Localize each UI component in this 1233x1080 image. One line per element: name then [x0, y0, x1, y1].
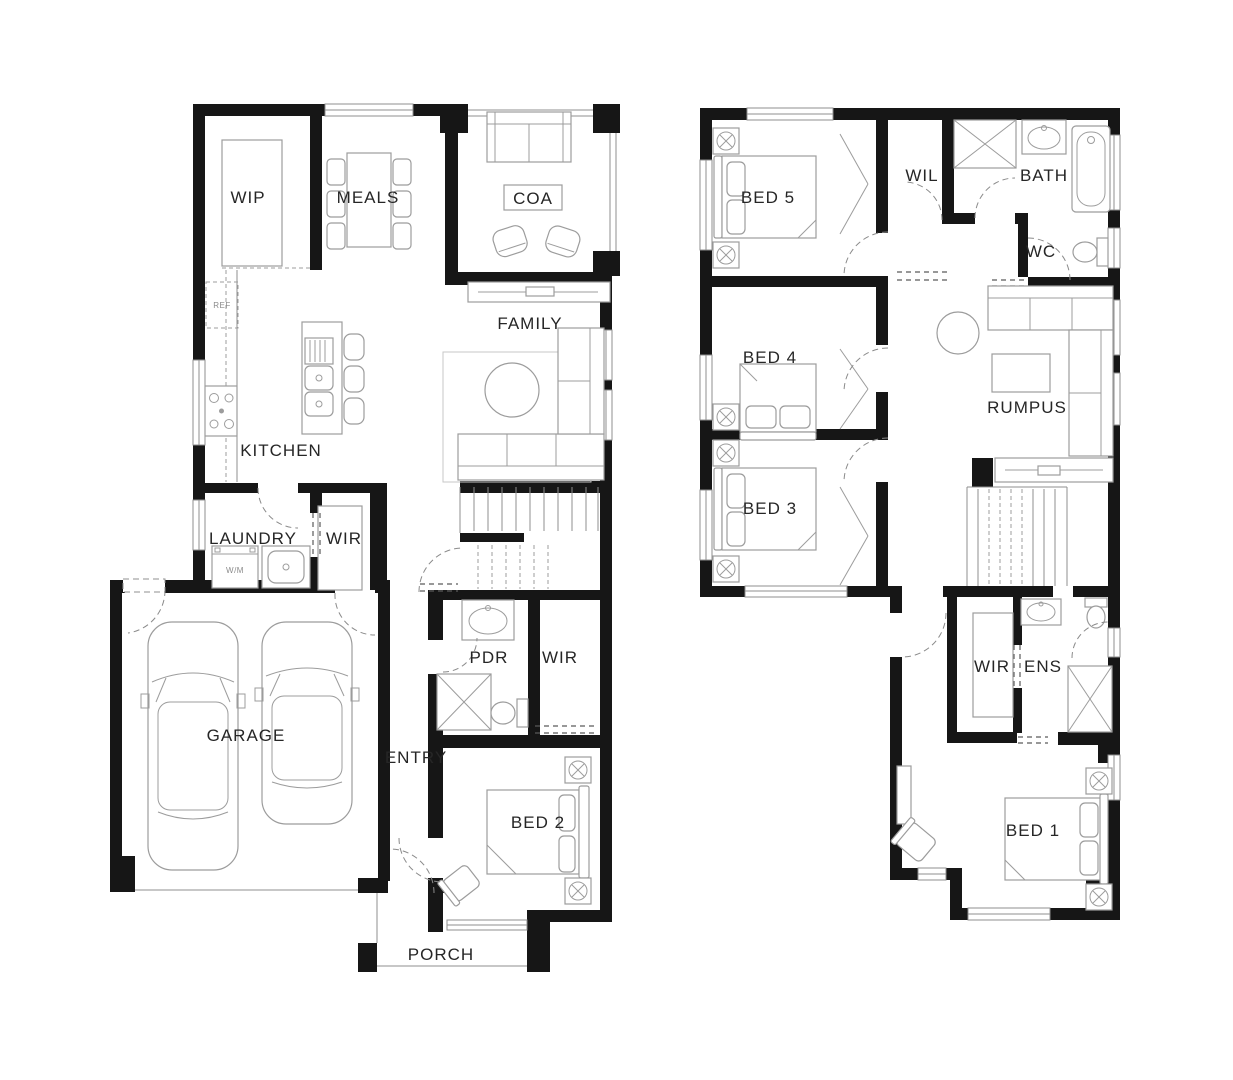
- bathtub: [1072, 126, 1110, 212]
- bath-shower: [954, 120, 1016, 168]
- floorplan-page: WIP MEALS COA FAMILY KITCHEN LAUNDRY WIR…: [0, 0, 1233, 1080]
- room-label-bath: BATH: [1020, 166, 1068, 185]
- ceiling-symbol: [713, 242, 739, 268]
- outdoor-sofa: [487, 112, 571, 162]
- bed: [487, 786, 589, 878]
- stool: [344, 334, 364, 360]
- dresser: [897, 766, 911, 824]
- window: [447, 920, 527, 930]
- ceiling-symbol: [1086, 768, 1112, 794]
- ceiling-symbol: [713, 128, 739, 154]
- room-label-coa: COA: [513, 189, 553, 208]
- ceiling-symbol: [565, 757, 591, 783]
- window: [968, 908, 1050, 920]
- window: [325, 104, 413, 116]
- tv-unit: [468, 282, 610, 302]
- room-label-wir-first: WIR: [974, 657, 1010, 676]
- window: [747, 108, 833, 120]
- sink-bowl: [305, 366, 333, 390]
- floorplan-svg: WIP MEALS COA FAMILY KITCHEN LAUNDRY WIR…: [0, 0, 1233, 1080]
- ceiling-symbol: [1086, 884, 1112, 910]
- appliance-label-wm: W/M: [226, 566, 244, 575]
- pdr-basin: [462, 600, 514, 640]
- cooktop: [205, 386, 237, 436]
- ens-shower: [1068, 666, 1112, 732]
- window: [745, 586, 847, 597]
- robe-shelf: [318, 506, 362, 590]
- bed: [740, 364, 816, 440]
- window: [193, 360, 205, 445]
- window: [193, 500, 205, 550]
- room-label-porch: PORCH: [408, 945, 474, 964]
- room-label-meals: MEALS: [337, 188, 400, 207]
- island-bench: [302, 322, 342, 434]
- room-label-bed5: BED 5: [741, 188, 795, 207]
- room-label-bed4: BED 4: [743, 348, 797, 367]
- room-label-wir2: WIR: [542, 648, 578, 667]
- bath-basin: [1022, 120, 1066, 154]
- window: [700, 490, 712, 560]
- room-label-wc: WC: [1026, 242, 1056, 261]
- ens-basin: [1021, 599, 1061, 625]
- ceiling-symbol: [565, 878, 591, 904]
- stool: [344, 398, 364, 424]
- window: [918, 868, 946, 880]
- sink-bowl: [305, 392, 333, 416]
- room-label-bed1: BED 1: [1006, 821, 1060, 840]
- ottoman: [485, 363, 539, 417]
- ceiling-symbol: [713, 404, 739, 430]
- room-label-bed2: BED 2: [511, 813, 565, 832]
- room-label-wil: WIL: [905, 166, 938, 185]
- room-label-kitchen: KITCHEN: [240, 441, 322, 460]
- room-label-garage: GARAGE: [207, 726, 286, 745]
- room-label-ens: ENS: [1024, 657, 1062, 676]
- room-label-entry: ENTRY: [385, 748, 447, 767]
- car: [255, 622, 359, 824]
- room-label-bed3: BED 3: [743, 499, 797, 518]
- ceiling-symbol: [713, 440, 739, 466]
- room-label-wip: WIP: [230, 188, 265, 207]
- tv-unit: [995, 458, 1113, 482]
- room-label-pdr: PDR: [470, 648, 509, 667]
- car: [141, 622, 245, 870]
- room-label-wir: WIR: [326, 529, 362, 548]
- pdr-toilet: [491, 699, 528, 727]
- ceiling-symbol: [713, 556, 739, 582]
- laundry-tub: [262, 546, 310, 588]
- pdr-shower: [437, 674, 491, 730]
- room-label-laundry: LAUNDRY: [209, 529, 297, 548]
- window: [700, 355, 712, 420]
- window: [700, 160, 712, 250]
- window: [1108, 228, 1120, 268]
- stool: [344, 366, 364, 392]
- window: [1108, 628, 1120, 657]
- room-label-rumpus: RUMPUS: [987, 398, 1067, 417]
- ottoman: [937, 312, 979, 354]
- rumpus-table: [992, 354, 1050, 392]
- appliance-label-ref: REF: [213, 301, 231, 310]
- room-label-family: FAMILY: [497, 314, 562, 333]
- ens-toilet: [1085, 598, 1107, 628]
